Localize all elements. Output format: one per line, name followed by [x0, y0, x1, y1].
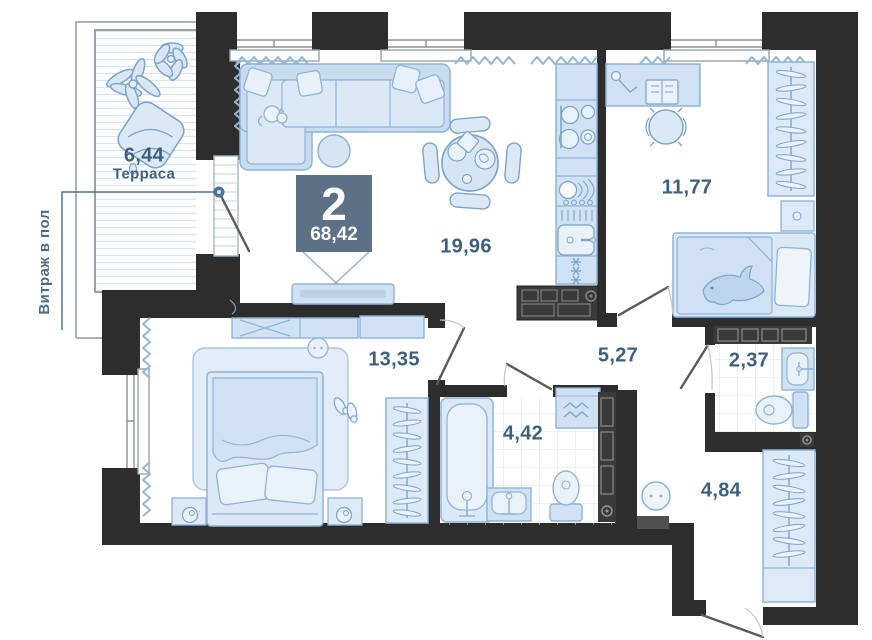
desk-icon [606, 64, 700, 106]
tv-stand-icon [292, 252, 394, 304]
window-bedroom [102, 369, 149, 474]
nightstand-icon [781, 201, 814, 231]
dresser-icon [232, 316, 424, 338]
room-area-label-entry: 4,84 [701, 480, 741, 503]
total-area: 68,42 [310, 225, 358, 245]
bathtub-icon [441, 398, 493, 522]
room-area-label-bathroom: 4,42 [503, 423, 543, 446]
door-opening [617, 313, 672, 327]
rooms-count: 2 [321, 183, 347, 225]
room-area-label-wc: 2,37 [729, 350, 769, 373]
walls [102, 12, 858, 625]
shelving-icon [598, 392, 616, 522]
drain-icon [800, 433, 814, 447]
kitchen-counter-icon [556, 64, 597, 284]
single-bed-icon [673, 233, 815, 317]
shelving-icon [713, 326, 812, 344]
window-top-1 [230, 12, 319, 61]
wardrobe-icon [386, 398, 428, 523]
room-area-label-hallway: 5,27 [598, 345, 638, 368]
floor-plan: 6,44 Терраса 19,96 11,77 13,35 5,27 2,37… [0, 0, 872, 640]
room-area-label-living-kitchen: 19,96 [440, 236, 492, 259]
room-area-label-bedroom-master: 13,35 [368, 349, 420, 372]
entrance-door-leaf [702, 608, 763, 637]
room-area-label-bedroom-second: 11,77 [662, 177, 712, 200]
bathroom-sink-icon [487, 488, 531, 521]
window-top-3 [664, 12, 769, 61]
bathroom-sink-icon [782, 348, 814, 390]
glazing-callout-label: Витраж в пол [36, 187, 56, 337]
fridge-icon [571, 258, 581, 284]
wardrobe-icon [768, 62, 814, 196]
pouf-icon [308, 338, 328, 358]
toilet-icon [550, 471, 582, 521]
mirror-icon [642, 482, 670, 510]
window-top-2 [381, 12, 471, 61]
terrace-door [214, 156, 249, 256]
room-name-label-terrace: Терраса [113, 166, 175, 183]
hall-cabinet-icon [517, 286, 598, 320]
washer-icon [556, 388, 600, 428]
apartment-type-badge: 2 68,42 [296, 175, 372, 252]
floor-plan-drawing [0, 0, 872, 640]
desk-chair-icon [646, 108, 686, 146]
threshold [637, 516, 669, 529]
room-area-label-terrace: 6,44 [124, 145, 164, 168]
ottoman-icon [318, 135, 350, 167]
wardrobe-icon [763, 450, 815, 602]
